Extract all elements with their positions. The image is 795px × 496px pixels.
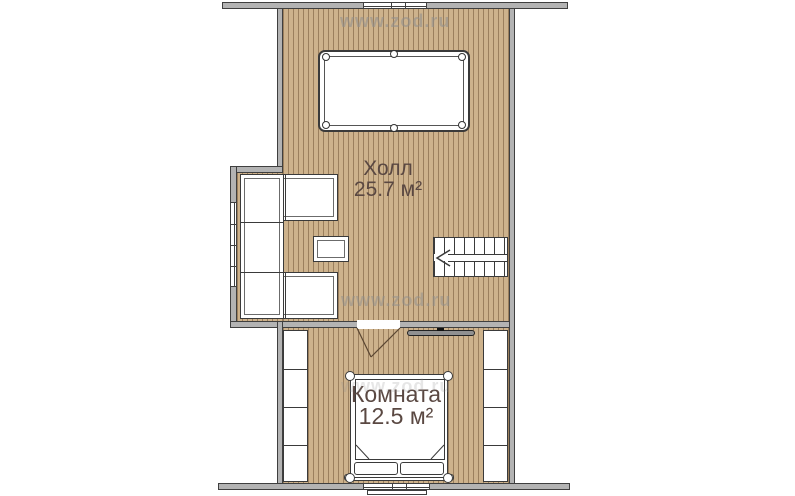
stairs-direction-arrow <box>435 249 451 267</box>
stairs <box>433 237 508 277</box>
billiard-pocket <box>458 53 466 61</box>
billiard-pocket <box>322 53 330 61</box>
billiard-pocket <box>390 50 398 58</box>
bedroom-area: 12.5 м² <box>296 405 496 427</box>
watermark: www.zod.ru <box>340 11 450 32</box>
bed-post <box>345 473 355 483</box>
billiard-pocket <box>322 121 330 129</box>
billiard-pocket <box>390 124 398 132</box>
window-bottom <box>363 483 430 490</box>
hall-area: 25.7 м² <box>288 179 488 200</box>
coffee-table <box>313 236 349 262</box>
billiard-table <box>318 50 470 132</box>
window-alcove-left <box>230 202 237 287</box>
watermark: www.zod.ru <box>341 376 451 397</box>
sofa-left-section <box>240 174 284 319</box>
wall-alcove-top <box>230 166 283 173</box>
wall-right <box>509 8 515 484</box>
wall-hall-left <box>277 8 283 173</box>
window-top <box>363 2 427 9</box>
floor-plan: Холл 25.7 м² Комната 12.5 м² www.zod.ru … <box>0 0 795 496</box>
tv <box>407 330 475 336</box>
hall-name: Холл <box>288 158 488 179</box>
billiard-pocket <box>458 121 466 129</box>
hall-label: Холл 25.7 м² <box>288 158 488 200</box>
bed-pillow <box>400 462 444 475</box>
door-opening <box>357 320 400 329</box>
bed-pillow <box>354 462 398 475</box>
wall-bedroom-left <box>277 321 283 484</box>
watermark: www.zod.ru <box>341 290 451 311</box>
window-bottom-sill <box>367 490 427 495</box>
bed-post <box>443 473 453 483</box>
stairs-landing <box>448 254 507 262</box>
billiard-rail <box>324 56 464 126</box>
